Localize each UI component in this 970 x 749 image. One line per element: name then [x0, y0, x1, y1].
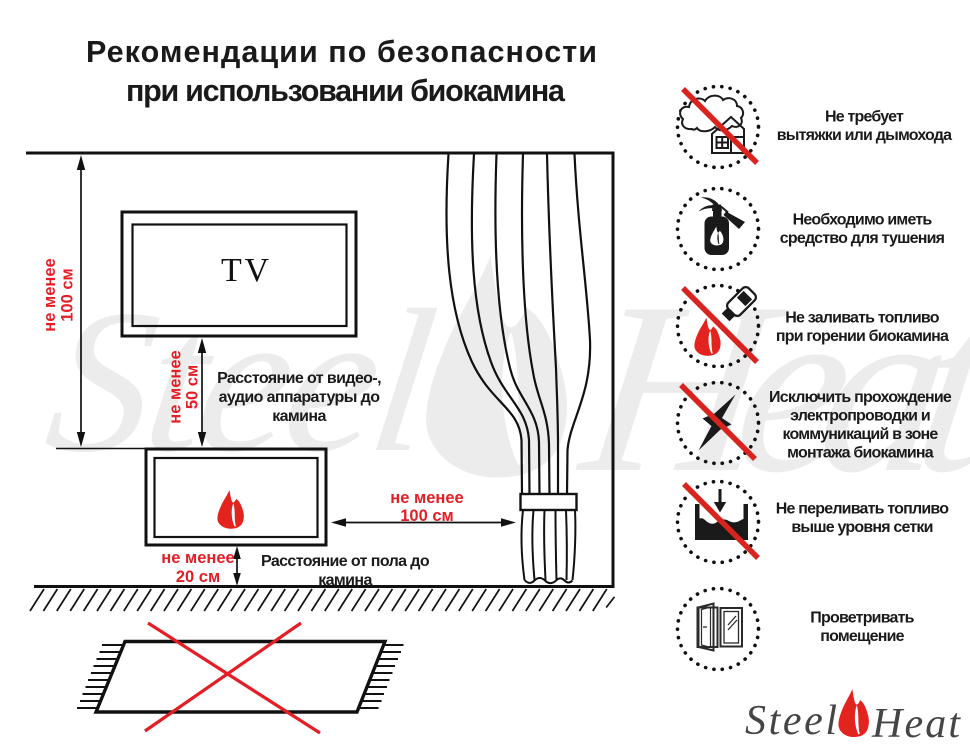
svg-text:аудио аппаратуры до: аудио аппаратуры до [219, 389, 381, 406]
svg-text:Расстояние от пола до: Расстояние от пола до [261, 553, 430, 570]
svg-text:выше уровня сетки: выше уровня сетки [791, 519, 932, 536]
svg-text:коммуникаций в зоне: коммуникаций в зоне [782, 426, 938, 443]
svg-text:при горении биокамина: при горении биокамина [776, 328, 949, 345]
svg-text:Расстояние от видео-,: Расстояние от видео-, [217, 370, 381, 387]
svg-text:50 см: 50 см [184, 365, 202, 409]
svg-text:Steel: Steel [745, 698, 837, 744]
svg-text:камина: камина [272, 408, 326, 425]
svg-text:Исключить прохождение: Исключить прохождение [769, 389, 952, 406]
svg-text:Необходимо иметь: Необходимо иметь [793, 212, 933, 229]
svg-text:TV: TV [221, 252, 269, 289]
svg-text:монтажа биокамина: монтажа биокамина [787, 445, 934, 462]
svg-text:100 см: 100 см [400, 507, 454, 525]
svg-text:не менее: не менее [167, 350, 185, 423]
svg-text:средство для тушения: средство для тушения [780, 230, 945, 247]
svg-text:не менее: не менее [390, 489, 463, 507]
svg-text:не менее: не менее [41, 258, 59, 331]
svg-text:электропроводки и: электропроводки и [790, 408, 930, 425]
svg-text:Не заливать топливо: Не заливать топливо [785, 310, 939, 327]
svg-text:100 см: 100 см [59, 268, 77, 322]
svg-text:не менее: не менее [161, 549, 234, 567]
svg-text:помещение: помещение [820, 628, 904, 645]
svg-text:Не требует: Не требует [825, 109, 904, 126]
svg-text:Не переливать топливо: Не переливать топливо [776, 501, 949, 518]
svg-text:при использовании биокамина: при использовании биокамина [126, 74, 566, 108]
svg-text:20 см: 20 см [176, 568, 220, 586]
svg-text:Проветривать: Проветривать [810, 610, 914, 627]
svg-text:Рекомендации по безопасности: Рекомендации по безопасности [86, 35, 597, 69]
svg-text:камина: камина [318, 572, 372, 589]
svg-text:Heat: Heat [871, 701, 961, 747]
svg-text:вытяжки или дымохода: вытяжки или дымохода [777, 127, 952, 144]
